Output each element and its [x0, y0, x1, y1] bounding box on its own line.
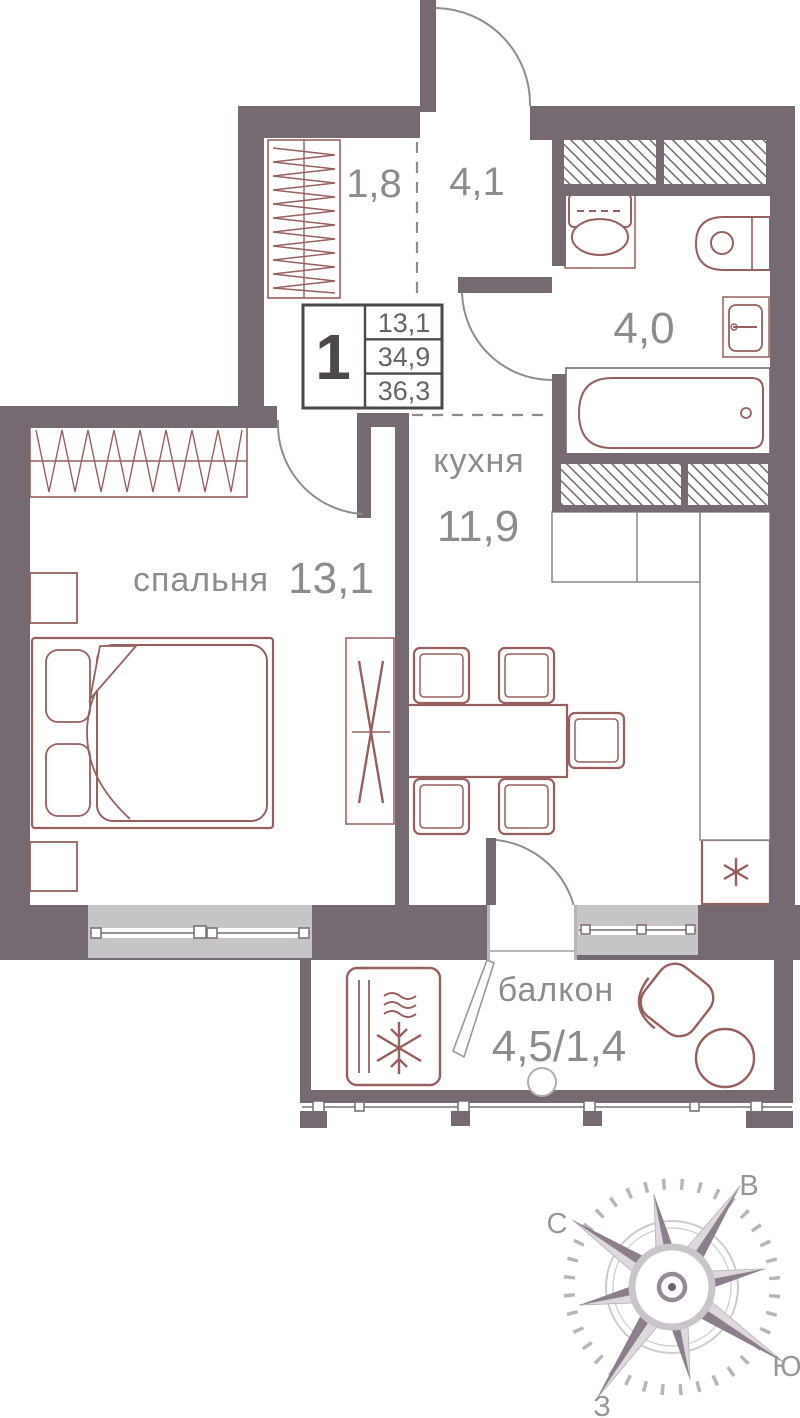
washing-machine	[723, 297, 769, 357]
nightstand	[30, 573, 77, 623]
dining-chair	[499, 779, 554, 834]
compass-label-west: З	[593, 1391, 611, 1418]
dining-table	[407, 705, 567, 777]
bedroom-window	[88, 905, 312, 958]
right-wall	[770, 106, 795, 960]
bathroom-sink	[696, 217, 770, 270]
kitchen-window	[577, 905, 698, 955]
bathroom-door-leaf	[458, 277, 552, 293]
balcony-area-label: 4,5/1,4	[492, 1022, 627, 1071]
total-area-value: 36,3	[378, 376, 431, 406]
bedroom-name-label: спальня	[133, 561, 269, 599]
living-area-value: 13,1	[378, 308, 431, 338]
tv-stand	[346, 638, 394, 824]
compass-label-south: Ю	[772, 1351, 800, 1383]
hall-wardrobe	[268, 140, 340, 298]
bathroom-left-wall-lower	[552, 374, 566, 460]
nightstand	[30, 842, 77, 891]
top-wall-left	[238, 106, 420, 138]
balcony-name-label: балкон	[498, 971, 614, 1009]
corridor-area-label: 4,1	[449, 160, 505, 204]
refrigerator	[702, 840, 770, 904]
dining-set	[407, 648, 624, 834]
bed	[32, 638, 273, 828]
bathroom-door-arc	[462, 293, 552, 380]
bedroom-wardrobe	[30, 425, 247, 497]
entrance-door-arc	[436, 8, 530, 106]
compass-rose: С В Ю З	[497, 1119, 800, 1418]
bathtub	[566, 368, 770, 457]
compass-label-north: С	[547, 1208, 568, 1240]
partition-wall	[395, 413, 409, 960]
bedroom-door-leaf	[357, 415, 371, 518]
mattress	[97, 645, 267, 821]
kitchen-area-label: 11,9	[437, 502, 519, 551]
dining-chair	[414, 779, 469, 834]
bedroom-area-label: 13,1	[288, 554, 374, 603]
dining-chair	[499, 648, 554, 703]
balcony-door-opening	[487, 905, 577, 960]
kitchen-name-label: кухня	[433, 442, 524, 480]
unit-info-card: 1 13,1 34,9 36,3	[303, 305, 442, 408]
hall-left-wall	[238, 106, 264, 415]
floor-plan: 1,8 4,1 4,0 кухня 11,9 спальня 13,1 балк…	[0, 0, 800, 1418]
bathroom-area-label: 4,0	[613, 304, 674, 353]
hall-area-label: 1,8	[346, 162, 402, 206]
balcony-exterior-door-leaf	[453, 960, 494, 1057]
dining-chair	[569, 713, 624, 768]
apartment-area-value: 34,9	[378, 342, 431, 372]
compass-label-east: В	[739, 1170, 758, 1202]
balcony-marker-circle	[528, 1068, 556, 1096]
bedroom-top-wall	[0, 406, 277, 428]
toilet	[565, 190, 635, 268]
rooms-count: 1	[315, 321, 351, 393]
pillow	[46, 650, 90, 722]
dining-chair	[414, 648, 469, 703]
balcony-chair	[626, 953, 720, 1047]
ac-unit	[347, 968, 440, 1085]
pillow	[46, 744, 90, 816]
kitchen-counter	[552, 512, 770, 840]
left-wall	[0, 406, 30, 960]
balcony-table	[696, 1029, 754, 1087]
bedroom-door-arc	[278, 420, 363, 514]
balcony-right-wall	[774, 958, 793, 1103]
entrance-door-leaf	[420, 0, 436, 112]
